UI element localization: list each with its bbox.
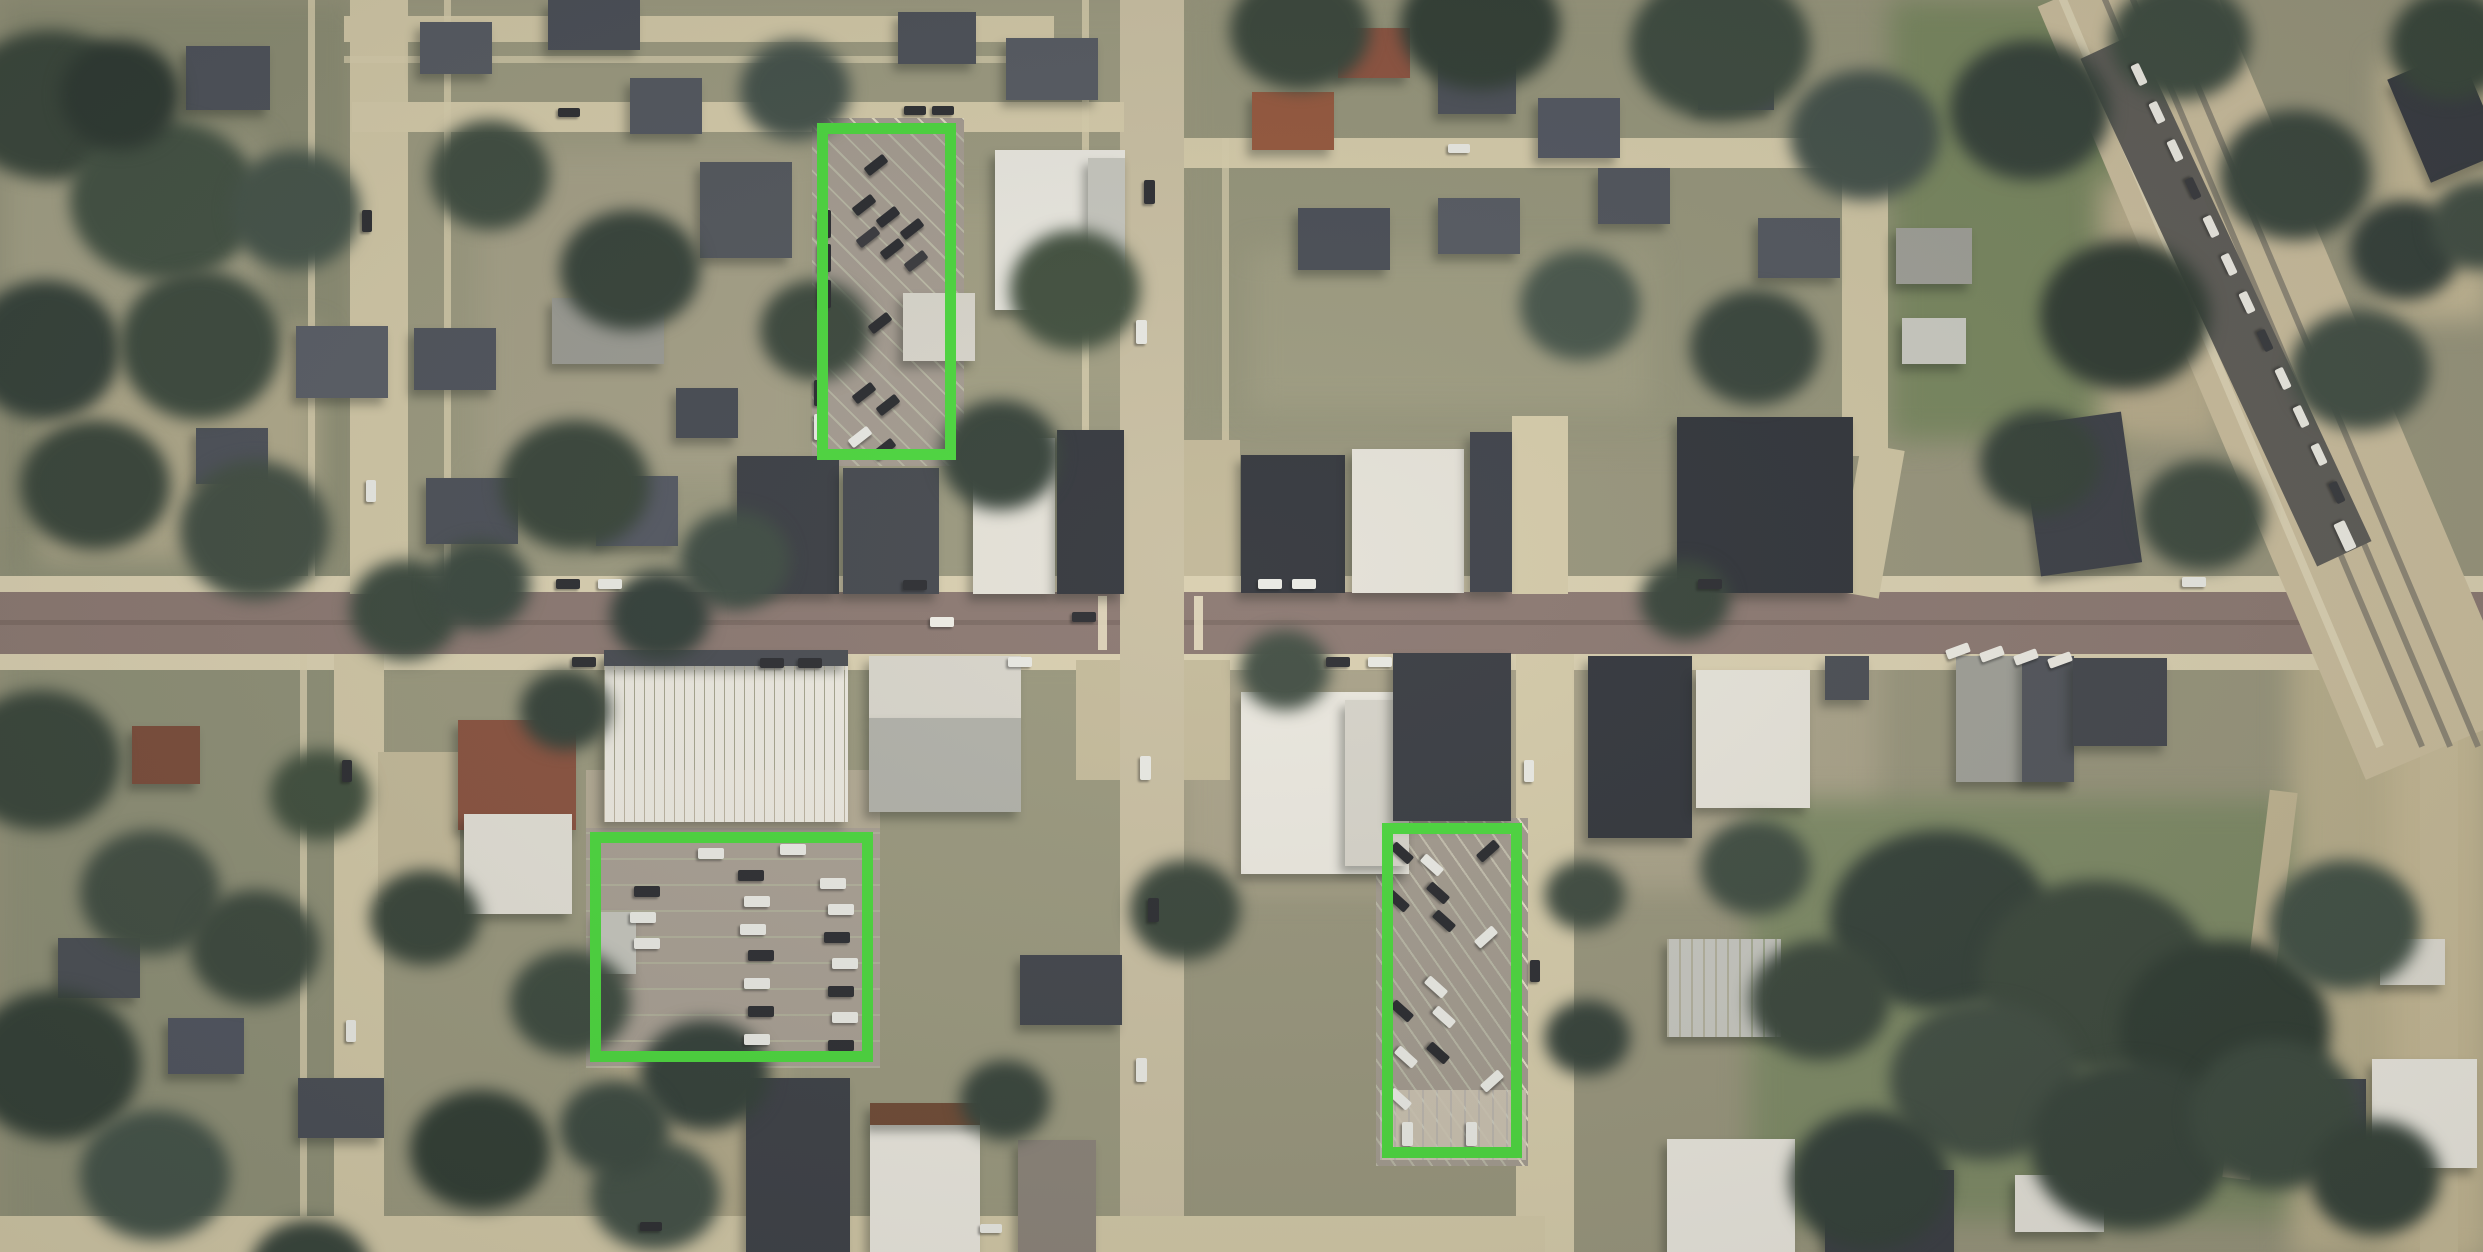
tree <box>1690 290 1820 405</box>
commercial-building <box>869 718 1021 812</box>
tree <box>20 420 170 550</box>
tree <box>1010 230 1140 350</box>
tree <box>370 870 480 965</box>
tree <box>190 890 320 1005</box>
tree <box>610 570 710 660</box>
commercial-building <box>1020 955 1122 1025</box>
tree <box>1790 1110 1950 1250</box>
parking-lot-detection-3 <box>1382 823 1522 1158</box>
car <box>346 1020 356 1042</box>
car <box>1530 960 1540 982</box>
car <box>556 579 580 589</box>
car <box>1140 756 1151 780</box>
car <box>342 760 352 782</box>
tree <box>60 40 180 150</box>
tree <box>180 460 330 600</box>
car <box>1136 1058 1147 1082</box>
car <box>1698 579 1722 589</box>
car <box>1292 579 1316 589</box>
car <box>362 210 372 232</box>
house <box>420 22 492 74</box>
supermarket-white-roof <box>604 656 848 822</box>
house-brown-roof <box>132 726 200 784</box>
tree <box>1545 860 1625 930</box>
tree <box>960 1060 1050 1140</box>
storefront <box>1352 449 1464 593</box>
house <box>1758 218 1840 278</box>
tree <box>1240 630 1330 710</box>
tree <box>940 400 1060 510</box>
parking-apron <box>1184 440 1240 576</box>
car <box>798 658 822 668</box>
tree <box>1980 410 2100 515</box>
tree <box>1520 250 1640 360</box>
commercial-building <box>2022 656 2074 782</box>
storefront <box>843 468 939 594</box>
tree <box>2140 460 2265 570</box>
house <box>1006 38 1098 100</box>
car <box>1008 657 1032 667</box>
white-roof-building <box>870 1123 980 1252</box>
aerial-satellite-image <box>0 0 2483 1252</box>
side-street <box>1512 416 1568 594</box>
car <box>1448 144 1470 153</box>
tree <box>120 270 280 420</box>
tree <box>1950 40 2110 180</box>
house <box>168 1018 244 1074</box>
house <box>1018 1140 1096 1252</box>
house <box>1538 98 1620 158</box>
side-street <box>350 0 408 594</box>
house <box>676 388 738 438</box>
tree <box>1130 860 1240 960</box>
crosswalk <box>1194 596 1203 650</box>
crosswalk <box>1098 596 1107 650</box>
car <box>572 657 596 667</box>
house <box>414 328 496 390</box>
car <box>903 580 927 590</box>
car <box>980 1224 1002 1233</box>
storefront <box>1241 455 1345 593</box>
car <box>1368 657 1392 667</box>
tree <box>430 120 550 230</box>
commercial-building <box>1393 653 1511 821</box>
tree <box>2220 110 2370 240</box>
parking-apron <box>1076 660 1120 780</box>
church-white-building <box>464 814 572 914</box>
tree <box>80 1110 230 1240</box>
tree <box>1545 1000 1630 1075</box>
tree <box>500 420 650 550</box>
tree <box>410 1090 550 1210</box>
car <box>366 480 376 502</box>
house <box>898 12 976 64</box>
side-street <box>334 654 384 1252</box>
tree <box>2290 310 2430 430</box>
car <box>932 106 954 115</box>
storefront <box>1470 432 1512 592</box>
car <box>1524 760 1534 782</box>
commercial-building <box>700 162 792 258</box>
parking-apron <box>1184 660 1230 780</box>
car <box>904 106 926 115</box>
tree <box>1790 70 1940 200</box>
tree <box>560 210 700 330</box>
car <box>2182 577 2206 587</box>
tree <box>1640 560 1730 640</box>
white-roof-building <box>1667 1139 1795 1252</box>
car <box>1148 898 1159 922</box>
car <box>930 617 954 627</box>
parking-lot-detection-2 <box>590 832 873 1062</box>
house <box>1598 168 1670 224</box>
house <box>1902 318 1966 364</box>
car <box>1072 612 1096 622</box>
storefront <box>1057 430 1124 594</box>
house <box>630 78 702 134</box>
tree <box>270 750 370 840</box>
car <box>1144 180 1155 204</box>
house <box>298 1078 384 1138</box>
house <box>1438 198 1520 254</box>
white-roof-building <box>1696 670 1810 808</box>
tree <box>2040 240 2210 390</box>
car <box>1258 579 1282 589</box>
tree <box>1750 940 1890 1060</box>
tree <box>560 1080 670 1175</box>
commercial-building <box>869 656 1021 718</box>
car <box>558 108 580 117</box>
car <box>760 658 784 668</box>
tree <box>1700 820 1810 915</box>
shed <box>1825 656 1869 700</box>
car <box>1136 320 1147 344</box>
commercial-building <box>1588 656 1692 838</box>
house-orange-roof <box>1252 92 1334 150</box>
commercial-building <box>746 1078 850 1252</box>
commercial-building <box>2073 658 2167 746</box>
tree <box>2310 1120 2440 1235</box>
house <box>1896 228 1972 284</box>
house <box>186 46 270 110</box>
tree <box>520 670 610 750</box>
car <box>598 579 622 589</box>
tree <box>230 150 360 270</box>
parking-lot-detection-1 <box>817 123 956 460</box>
house <box>296 326 388 398</box>
car <box>1326 657 1350 667</box>
car <box>640 1222 662 1231</box>
tree <box>2270 860 2420 990</box>
house <box>1298 208 1390 270</box>
house <box>548 0 640 50</box>
tree <box>430 540 530 630</box>
